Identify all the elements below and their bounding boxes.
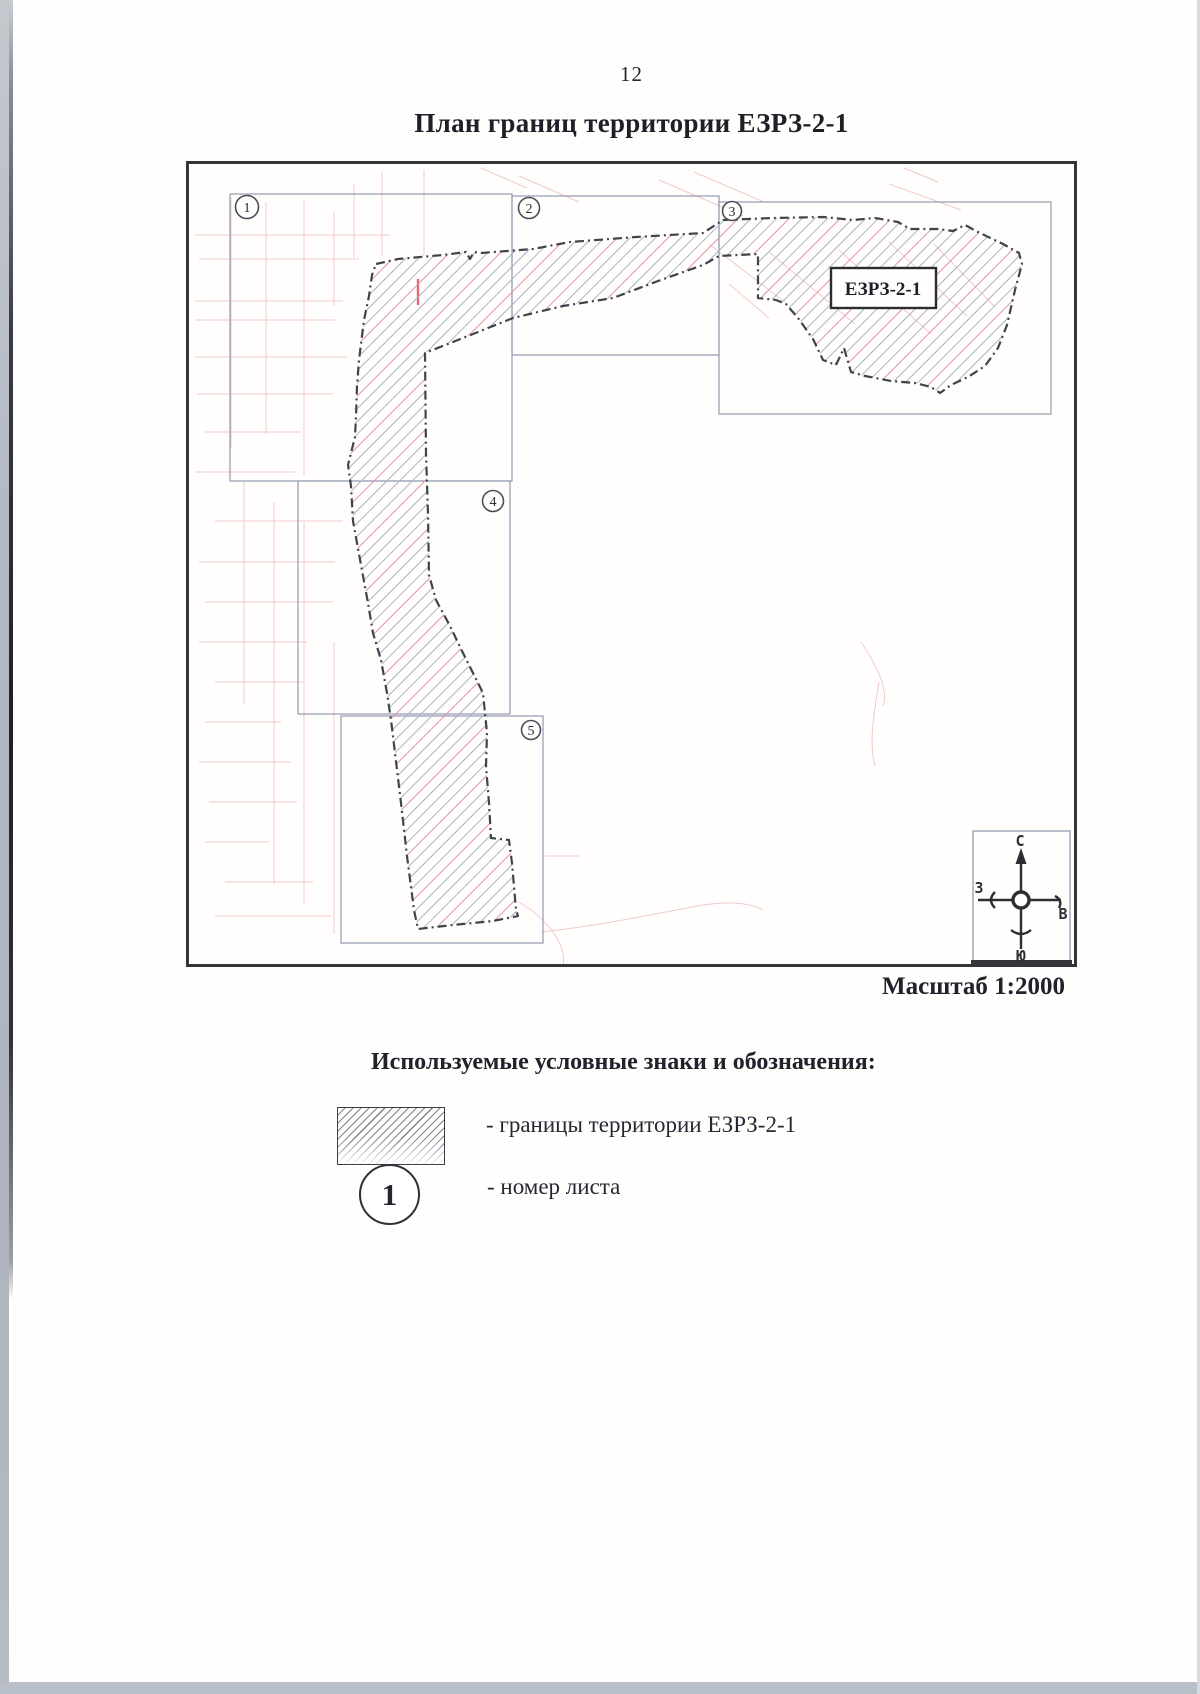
compass-east-label: В — [1058, 905, 1067, 923]
region-label: ЕЗРЗ-2-1 — [845, 279, 921, 300]
map-scale-label: Масштаб 1:2000 — [700, 973, 1065, 1001]
compass-west-label: З — [974, 879, 983, 897]
region-label-box: ЕЗРЗ-2-1 — [831, 268, 936, 308]
sheet-marker-1: 1 — [236, 196, 259, 219]
sheet-marker-3-number: 3 — [729, 205, 736, 220]
page-title: План границ территории ЕЗРЗ-2-1 — [186, 108, 1077, 139]
legend-item-territory-label: - границы территории ЕЗРЗ-2-1 — [486, 1112, 796, 1138]
sheet-marker-2-number: 2 — [526, 202, 533, 217]
compass-south-label: Ю — [1016, 947, 1026, 964]
sheet-marker-5-number: 5 — [528, 724, 535, 739]
scan-edge-line — [9, 0, 13, 1300]
map-drawing: ЕЗРЗ-2-1 1 2 3 4 — [189, 164, 1074, 964]
scan-edge-artifact-bottom — [0, 1682, 1200, 1694]
scanned-document-page: 12 План границ территории ЕЗРЗ-2-1 — [0, 0, 1200, 1694]
sheet-number-symbol: 1 — [359, 1164, 420, 1225]
compass-north-label: С — [1015, 832, 1024, 850]
legend-heading: Используемые условные знаки и обозначени… — [371, 1049, 876, 1076]
sheet-marker-1-number: 1 — [244, 201, 251, 216]
scan-edge-artifact-left — [0, 0, 9, 1694]
page-number: 12 — [186, 62, 1077, 87]
territory-boundary-polygon — [348, 217, 1022, 929]
boundary-plan-map: ЕЗРЗ-2-1 1 2 3 4 — [186, 161, 1077, 967]
compass-rose: С З В Ю — [971, 831, 1072, 964]
territory-hatch-swatch — [337, 1107, 445, 1165]
sheet-marker-4: 4 — [483, 491, 504, 512]
sheet-marker-5: 5 — [522, 721, 541, 740]
sheet-marker-3: 3 — [723, 202, 742, 221]
sheet-marker-4-number: 4 — [490, 495, 497, 510]
legend-item-sheet-number-label: - номер листа — [487, 1174, 620, 1200]
sheet-number-symbol-digit: 1 — [382, 1177, 398, 1213]
sheet-marker-2: 2 — [519, 198, 540, 219]
